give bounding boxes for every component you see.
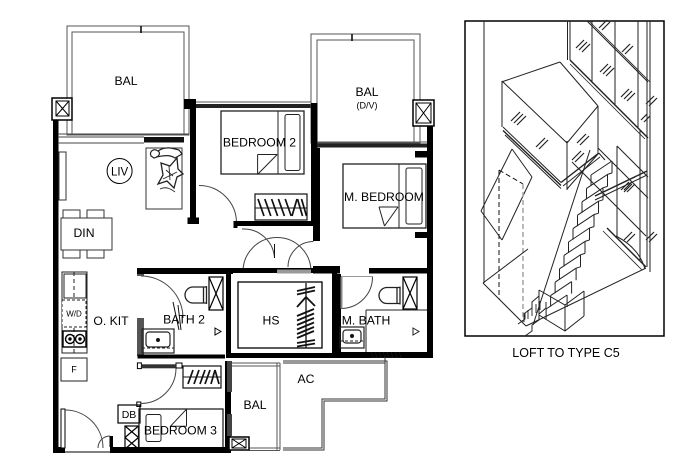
- svg-text:(D/V): (D/V): [357, 101, 378, 111]
- svg-text:BEDROOM 2: BEDROOM 2: [223, 136, 296, 150]
- svg-text:BATH 2: BATH 2: [163, 313, 205, 327]
- svg-text:W/D: W/D: [66, 310, 82, 319]
- svg-text:BAL: BAL: [243, 398, 266, 412]
- svg-text:HS: HS: [263, 314, 280, 328]
- svg-text:BAL: BAL: [114, 74, 137, 88]
- svg-text:DB: DB: [122, 409, 137, 421]
- svg-text:BEDROOM 3: BEDROOM 3: [144, 424, 217, 438]
- svg-text:DIN: DIN: [74, 226, 95, 240]
- svg-text:AC: AC: [298, 372, 315, 386]
- svg-text:BAL: BAL: [355, 85, 378, 99]
- svg-text:F: F: [71, 365, 77, 375]
- svg-text:LIV: LIV: [111, 167, 129, 179]
- svg-text:M. BEDROOM: M. BEDROOM: [344, 190, 424, 204]
- svg-text:LOFT TO TYPE C5: LOFT TO TYPE C5: [512, 346, 619, 360]
- svg-text:O. KIT: O. KIT: [93, 314, 129, 328]
